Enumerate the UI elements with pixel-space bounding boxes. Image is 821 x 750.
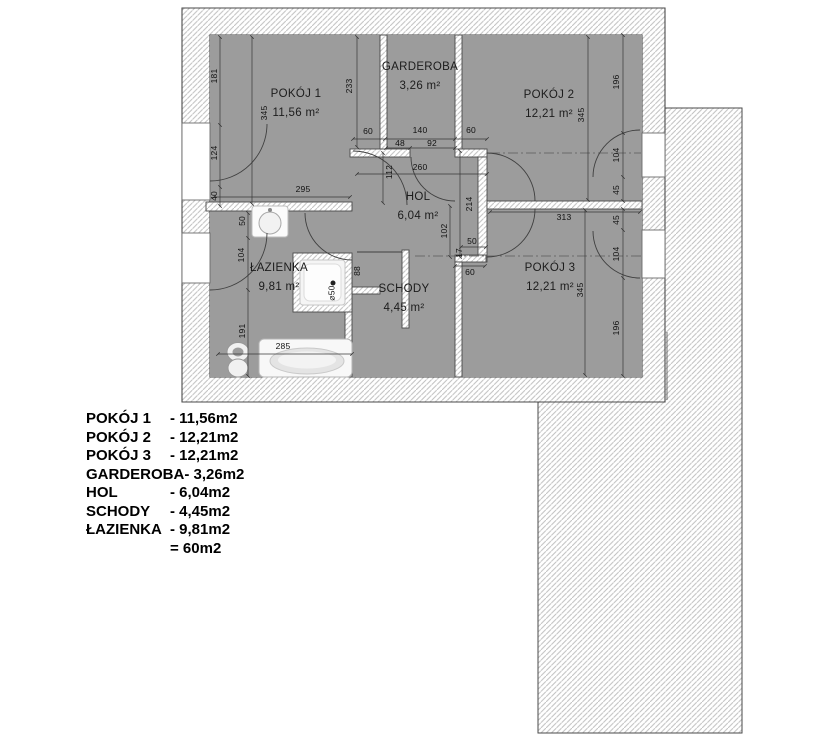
legend-room-area: - 4,45m2: [170, 503, 230, 520]
legend-item: = 60m2: [86, 540, 244, 559]
window-opening: [182, 123, 210, 200]
legend-item: POKÓJ 1- 11,56m2: [86, 410, 244, 429]
bathtub: [259, 339, 352, 377]
floor-plan-page: POKÓJ 1 11,56 m² GARDEROBA 3,26 m² POKÓJ…: [0, 0, 821, 750]
legend: POKÓJ 1- 11,56m2POKÓJ 2- 12,21m2POKÓJ 3-…: [86, 410, 244, 558]
interior-wall: [380, 35, 387, 151]
legend-room-area: - 12,21m2: [170, 429, 238, 446]
interior-wall: [487, 201, 642, 209]
legend-room-name: ŁAZIENKA: [86, 521, 170, 540]
washbasin: [252, 206, 288, 237]
shower-tray: [293, 253, 352, 312]
legend-item: POKÓJ 3- 12,21m2: [86, 447, 244, 466]
legend-room-name: POKÓJ 3: [86, 447, 170, 466]
legend-room-area: = 60m2: [170, 540, 221, 557]
legend-item: POKÓJ 2- 12,21m2: [86, 429, 244, 448]
interior-wall: [350, 149, 410, 157]
legend-item: HOL- 6,04m2: [86, 484, 244, 503]
legend-item: ŁAZIENKA- 9,81m2: [86, 521, 244, 540]
window-opening: [182, 233, 210, 283]
stairs-wall: [402, 250, 409, 328]
interior-wall: [352, 287, 380, 294]
legend-room-name: POKÓJ 2: [86, 429, 170, 448]
window-opening: [642, 133, 665, 177]
legend-room-area: - 3,26m2: [184, 466, 244, 483]
legend-room-name: HOL: [86, 484, 170, 503]
legend-room-name: GARDEROBA: [86, 466, 184, 485]
legend-room-area: - 6,04m2: [170, 484, 230, 501]
legend-room-area: - 11,56m2: [170, 410, 238, 427]
floor-plan-drawing: [0, 0, 821, 750]
window-opening: [642, 230, 665, 278]
legend-item: GARDEROBA- 3,26m2: [86, 466, 244, 485]
interior-wall: [455, 35, 462, 151]
legend-item: SCHODY- 4,45m2: [86, 503, 244, 522]
interior-wall: [455, 262, 462, 377]
interior-wall: [478, 157, 487, 262]
legend-room-name: SCHODY: [86, 503, 170, 522]
legend-room-name: POKÓJ 1: [86, 410, 170, 429]
legend-room-area: - 12,21m2: [170, 447, 238, 464]
legend-room-area: - 9,81m2: [170, 521, 230, 538]
